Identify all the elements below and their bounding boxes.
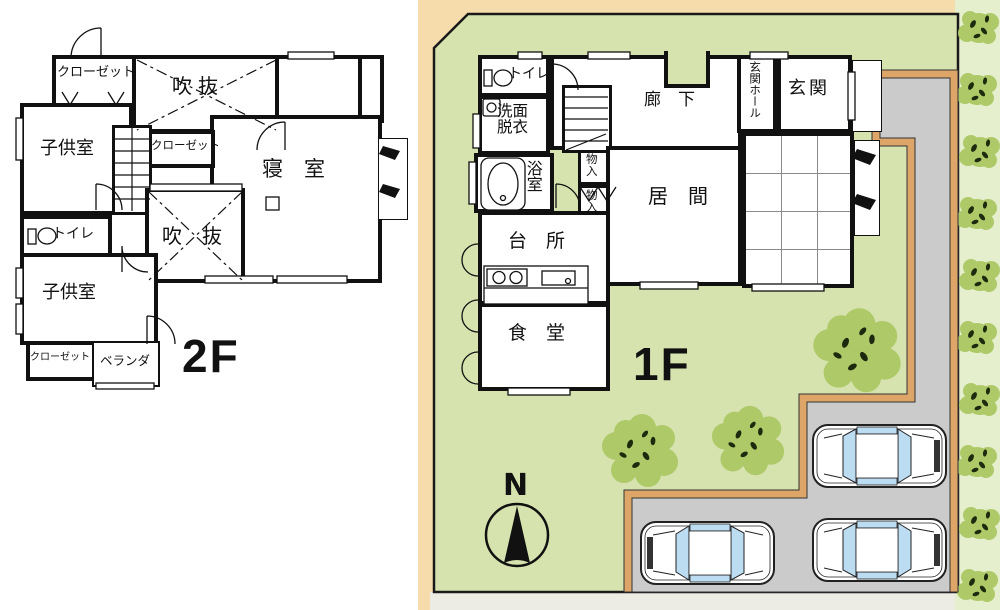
floorplan-canvas: クローゼット 吹抜 子供室 クローゼット 寝 室 吹 抜 トイレ 子供室 クロー…: [0, 0, 1000, 610]
north-label: N: [503, 470, 528, 502]
f2-floor-label: 2F: [182, 332, 240, 380]
labels-layer: クローゼット 吹抜 子供室 クローゼット 寝 室 吹 抜 トイレ 子供室 クロー…: [0, 0, 1000, 610]
f2-child-bottom-label: 子供室: [42, 284, 96, 303]
f1-storage2-label: 物入: [586, 189, 600, 213]
f1-washroom-label: 洗面脱衣: [497, 103, 533, 136]
f2-closet-mid-label: クローゼット: [151, 139, 220, 151]
f1-hall-label: 玄関ホール: [749, 61, 761, 119]
f2-closet-tl-label: クローゼット: [57, 66, 135, 80]
f2-bedroom-label: 寝 室: [262, 158, 325, 180]
f1-storage1-label: 物入: [586, 153, 600, 177]
f1-living-label: 居 間: [648, 186, 708, 207]
f2-veranda-label: ベランダ: [100, 354, 150, 367]
f1-corridor-label: 廊 下: [644, 92, 695, 110]
f2-void-mid-label: 吹 抜: [162, 226, 222, 247]
f1-floor-label: 1F: [633, 340, 691, 388]
f2-closet-bottom-label: クローゼット: [30, 353, 90, 364]
f2-toilet-label: トイレ: [52, 227, 94, 242]
f1-kitchen-label: 台 所: [508, 232, 565, 252]
f1-bath-label: 浴室: [524, 160, 541, 192]
f2-child-top-label: 子供室: [40, 140, 94, 159]
f2-void-top-label: 吹抜: [172, 76, 224, 97]
f1-entrance-label: 玄関: [788, 80, 830, 99]
f1-toilet-label: トイレ: [508, 67, 550, 82]
f1-dining-label: 食 堂: [508, 324, 565, 344]
